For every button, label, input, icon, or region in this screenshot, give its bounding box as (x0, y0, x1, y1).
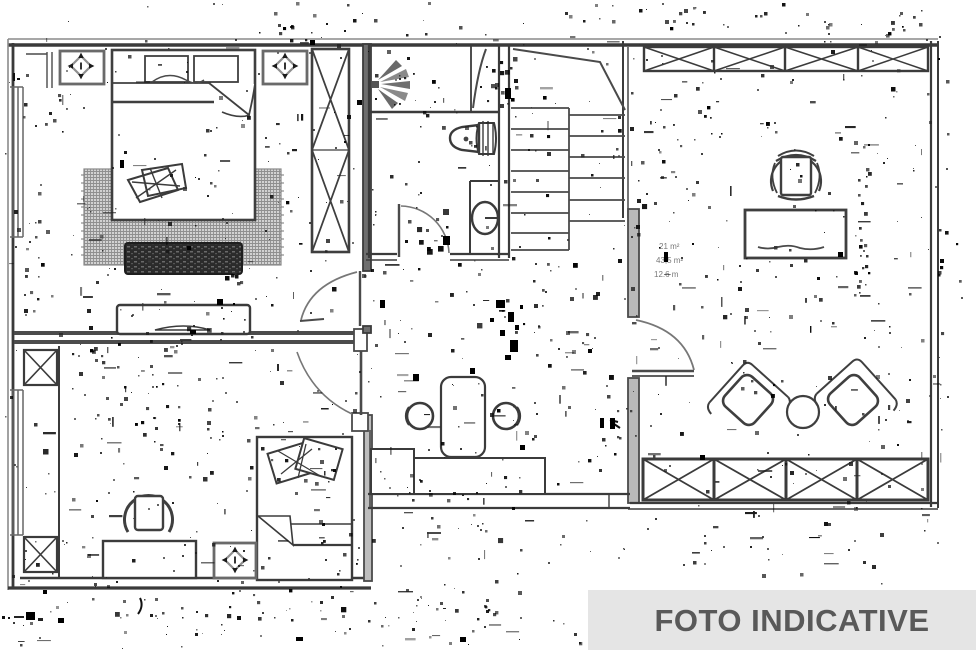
svg-text:FOTO INDICATIVE: FOTO INDICATIVE (654, 603, 929, 638)
svg-text:43,5 m²: 43,5 m² (656, 256, 683, 265)
svg-text:21 m²: 21 m² (659, 242, 680, 251)
